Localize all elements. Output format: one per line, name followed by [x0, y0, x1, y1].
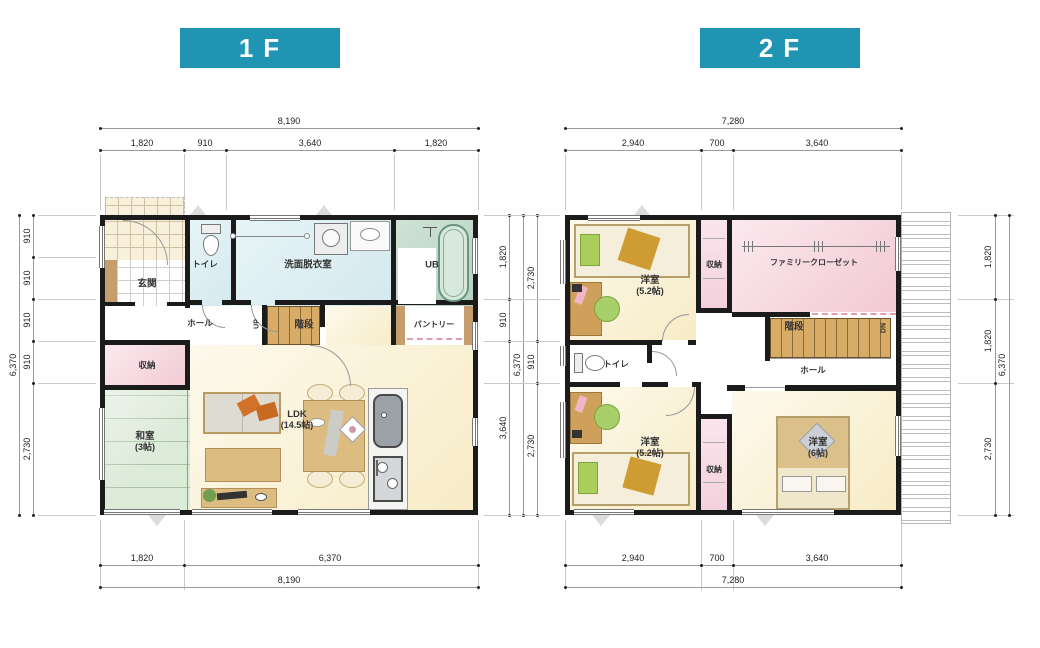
sliding-door-tatami	[187, 390, 188, 510]
dim-extension	[565, 520, 566, 590]
vent-marker	[148, 515, 166, 526]
ldk-size: (14.5帖)	[281, 420, 314, 431]
dim-tick	[994, 382, 997, 385]
dim-tick	[732, 564, 735, 567]
room-label-hall: ホール	[187, 318, 213, 328]
dim-label: 1,820	[131, 138, 154, 148]
dim-label: 910	[22, 228, 32, 243]
dim-tick	[18, 214, 21, 217]
dim-line	[523, 215, 524, 515]
dim-label: 6,370	[8, 354, 18, 377]
window	[472, 322, 478, 350]
window	[298, 509, 370, 515]
dim-tick	[393, 149, 396, 152]
floor1-plan: 玄関 トイレ 洗面脱衣室 UB ホール UP 階段 パントリー 収納 和室 (3…	[100, 215, 478, 515]
room-label-family-closet: ファミリークローゼット	[770, 258, 858, 268]
dim-label: 3,640	[498, 417, 508, 440]
vent-marker	[756, 515, 774, 526]
dim-extension	[484, 341, 560, 342]
stove-burner	[387, 478, 398, 489]
dim-tick	[564, 586, 567, 589]
window	[99, 408, 105, 480]
wall	[688, 340, 696, 345]
dim-label: 910	[498, 312, 508, 327]
room-label-entrance: 玄関	[137, 278, 156, 289]
dim-tick	[183, 149, 186, 152]
toilet-door-swing-f2	[652, 351, 677, 376]
dim-line	[509, 215, 510, 515]
dim-tick	[900, 564, 903, 567]
dim-extension	[484, 299, 560, 300]
room-label-pantry: パントリー	[414, 320, 454, 330]
dim-label: 3,640	[299, 138, 322, 148]
washing-machine-drum	[322, 229, 340, 247]
desk-lamp	[572, 284, 582, 292]
vent-marker	[190, 205, 206, 215]
wall	[727, 385, 745, 391]
floor2-plan: 洋室 (5.2帖) 収納 ファミリークローゼット 階段 DN ホール トイレ 洋…	[565, 215, 901, 515]
dim-extension	[184, 520, 185, 590]
room-label-storage: 収納	[138, 360, 155, 370]
room-label-stairs-f2: 階段	[784, 321, 803, 332]
dim-line	[100, 565, 478, 566]
dim-label: 2,730	[526, 267, 536, 290]
dim-tick	[900, 586, 903, 589]
bedroom-a-name: 洋室	[636, 275, 664, 286]
dim-label: 1,820	[983, 246, 993, 269]
wall	[570, 382, 620, 387]
room-label-tatami: 和室 (3帖)	[135, 431, 155, 453]
room-label-stairs: 階段	[294, 319, 313, 330]
toilet-bowl-f2	[585, 355, 605, 371]
dim-label: 6,370	[319, 553, 342, 563]
dim-extension	[958, 515, 1014, 516]
dim-tick	[477, 149, 480, 152]
room-label-bath: UB	[425, 259, 439, 270]
wall	[275, 300, 396, 305]
window	[192, 509, 272, 515]
dim-tick	[900, 127, 903, 130]
dim-extension	[38, 257, 96, 258]
dim-tick	[700, 149, 703, 152]
wall	[167, 302, 190, 306]
dim-extension	[394, 154, 395, 210]
dim-extension	[958, 383, 1014, 384]
dim-line	[100, 587, 478, 588]
bedroom-b-size: (5.2帖)	[636, 448, 664, 459]
wall	[105, 385, 190, 390]
dim-extension	[484, 383, 560, 384]
dim-extension	[901, 520, 902, 590]
window	[104, 509, 180, 515]
hangers	[814, 241, 826, 252]
stove-burner	[377, 462, 388, 473]
dim-tick	[32, 340, 35, 343]
dim-tick	[477, 564, 480, 567]
window	[472, 238, 478, 274]
stove-grate	[376, 460, 378, 476]
dim-label: 910	[197, 138, 212, 148]
room-label-toilet: トイレ	[192, 259, 218, 269]
dim-extension	[901, 154, 902, 210]
dim-tick	[1008, 514, 1011, 517]
window	[99, 226, 105, 268]
bed-pillow	[580, 234, 600, 266]
hangers	[876, 241, 888, 252]
tatami-name: 和室	[135, 431, 155, 442]
dining-chair	[339, 470, 365, 488]
wall	[642, 382, 668, 387]
dim-extension	[484, 215, 560, 216]
dim-tick	[32, 214, 35, 217]
dim-line	[33, 215, 34, 515]
dim-extension	[478, 520, 479, 590]
bed-pillow	[782, 476, 812, 492]
dim-extension	[958, 215, 1014, 216]
dim-extension	[38, 383, 96, 384]
wall	[696, 308, 732, 313]
wall	[765, 317, 770, 361]
dim-tick	[99, 149, 102, 152]
wall	[696, 220, 701, 308]
dim-label: 6,370	[512, 354, 522, 377]
bath-wash-area	[398, 248, 436, 304]
dim-line	[565, 128, 901, 129]
dim-tick	[900, 149, 903, 152]
ldk-name: LDK	[281, 409, 314, 420]
sliding-door-bedroom-c	[745, 387, 785, 388]
wall	[727, 414, 732, 510]
closet-shelf	[703, 442, 725, 443]
pantry-opening	[407, 338, 462, 340]
dim-extension	[226, 154, 227, 210]
dim-label: 7,280	[722, 116, 745, 126]
dim-line	[19, 215, 20, 515]
room-label-ldk: LDK (14.5帖)	[281, 409, 314, 431]
dim-tick	[477, 127, 480, 130]
dim-tick	[994, 514, 997, 517]
dim-label: 2,730	[526, 435, 536, 458]
dim-label: 2,940	[622, 138, 645, 148]
dim-line	[995, 215, 996, 515]
room-label-bedroom-c: 洋室 (6帖)	[808, 437, 828, 459]
vent-marker	[592, 515, 610, 526]
dim-tick	[564, 127, 567, 130]
dim-tick	[225, 149, 228, 152]
bed-pillow	[578, 462, 598, 494]
laundry-rod-end	[230, 233, 236, 239]
room-label-hall-f2: ホール	[800, 365, 826, 375]
dim-label: 910	[22, 270, 32, 285]
bedroom-c-name: 洋室	[808, 437, 828, 448]
wall	[727, 220, 732, 308]
dim-label: 6,370	[997, 354, 1007, 377]
dim-extension	[38, 299, 96, 300]
closet-shelf	[703, 482, 725, 483]
closet-shelf	[703, 278, 725, 279]
wall	[391, 220, 396, 300]
decor-dish	[255, 493, 267, 501]
toilet-tank	[201, 224, 221, 234]
window	[895, 416, 901, 456]
kitchen-sink	[373, 394, 403, 448]
dim-label: 700	[709, 138, 724, 148]
wall	[190, 300, 202, 305]
wall	[231, 220, 236, 300]
dim-label: 910	[526, 354, 536, 369]
room-label-closet-top: 収納	[706, 260, 722, 270]
window	[560, 346, 566, 366]
bedroom-b-name: 洋室	[636, 437, 664, 448]
dim-tick	[18, 514, 21, 517]
wall	[391, 300, 396, 345]
wall	[236, 300, 251, 305]
stairs-up-label: UP	[254, 319, 261, 329]
floor1-title: 1F	[180, 28, 340, 68]
desk-lamp	[572, 430, 582, 438]
dim-extension	[733, 154, 734, 210]
wall	[785, 385, 896, 391]
window	[588, 215, 640, 221]
stairs-dn-label: DN	[881, 323, 888, 333]
dim-tick	[99, 564, 102, 567]
dim-label: 3,640	[806, 138, 829, 148]
room-label-bedroom-b: 洋室 (5.2帖)	[636, 437, 664, 459]
dim-extension	[701, 520, 702, 590]
dim-label: 1,820	[131, 553, 154, 563]
window	[472, 418, 478, 446]
dim-label: 3,640	[806, 553, 829, 563]
coffee-table	[205, 448, 281, 482]
dim-extension	[478, 154, 479, 210]
dim-tick	[99, 127, 102, 130]
dim-label: 2,730	[22, 438, 32, 461]
dim-line	[100, 128, 478, 129]
wall	[320, 305, 325, 327]
dim-tick	[994, 298, 997, 301]
dim-tick	[564, 564, 567, 567]
tatami-size: (3帖)	[135, 442, 155, 453]
dim-tick	[32, 256, 35, 259]
room-label-closet-bottom: 収納	[706, 465, 722, 475]
room-label-washroom: 洗面脱衣室	[284, 259, 332, 270]
dim-label: 910	[22, 354, 32, 369]
dim-tick	[183, 564, 186, 567]
wall	[185, 220, 190, 308]
vent-marker	[634, 205, 650, 215]
stairs-edge	[770, 358, 891, 359]
dim-label: 2,940	[622, 553, 645, 563]
bedroom-a-size: (5.2帖)	[636, 286, 664, 297]
bedroom-c-size: (6帖)	[808, 448, 828, 459]
dim-tick	[700, 564, 703, 567]
family-closet-opening	[812, 313, 896, 315]
dim-tick	[32, 298, 35, 301]
bed-pillow	[816, 476, 846, 492]
dim-line	[1009, 215, 1010, 515]
window	[560, 402, 566, 458]
dim-extension	[958, 299, 1014, 300]
dim-tick	[477, 586, 480, 589]
hangers	[744, 241, 756, 252]
dim-line	[100, 150, 478, 151]
window	[560, 240, 566, 284]
dim-extension	[100, 520, 101, 590]
dim-tick	[1008, 214, 1011, 217]
dim-label: 2,730	[983, 438, 993, 461]
dim-tick	[99, 586, 102, 589]
floorplan-page: { "colors": { "title_bg": "#2095b3", "wa…	[0, 0, 1040, 648]
pantry-shelf-left	[396, 306, 405, 345]
wall	[105, 302, 135, 306]
dim-extension	[565, 154, 566, 210]
vanity-sink	[360, 228, 380, 241]
shower-fixture	[430, 227, 431, 237]
entrance-step-wood	[105, 260, 117, 306]
dim-extension	[100, 154, 101, 210]
dim-line	[565, 587, 901, 588]
dim-extension	[484, 515, 560, 516]
dining-chair	[307, 470, 333, 488]
closet-shelf	[703, 238, 725, 239]
dim-tick	[732, 149, 735, 152]
desk-chair	[594, 296, 620, 322]
window	[250, 215, 300, 221]
dim-line	[537, 215, 538, 515]
dim-extension	[38, 515, 96, 516]
dim-label: 8,190	[278, 575, 301, 585]
wall	[732, 312, 810, 317]
window	[895, 237, 901, 271]
laundry-rod	[233, 236, 307, 237]
toilet-tank-f2	[574, 353, 583, 373]
wall	[696, 382, 701, 510]
dim-label: 7,280	[722, 575, 745, 585]
ldk-floor-upper	[326, 306, 391, 350]
dim-extension	[38, 341, 96, 342]
room-label-bedroom-a: 洋室 (5.2帖)	[636, 275, 664, 297]
vent-marker	[316, 205, 332, 215]
dim-extension	[701, 154, 702, 210]
balcony-roof	[901, 212, 951, 524]
dim-label: 1,820	[425, 138, 448, 148]
dim-tick	[32, 514, 35, 517]
floor2-title: 2F	[700, 28, 860, 68]
dim-tick	[32, 382, 35, 385]
laundry-rod-end	[304, 233, 310, 239]
bathtub-inner	[443, 229, 464, 297]
dim-tick	[994, 214, 997, 217]
dim-label: 8,190	[278, 116, 301, 126]
dim-label: 1,820	[983, 330, 993, 353]
dim-label: 910	[22, 312, 32, 327]
room-label-toilet-f2: トイレ	[603, 359, 629, 369]
plant	[203, 489, 216, 502]
wall	[185, 340, 190, 390]
table-bowl	[349, 426, 356, 433]
desk-chair	[594, 404, 620, 430]
kitchen-faucet	[381, 412, 387, 418]
dim-label: 700	[709, 553, 724, 563]
dim-label: 1,820	[498, 246, 508, 269]
dim-tick	[564, 149, 567, 152]
wall	[105, 340, 190, 345]
dim-extension	[38, 215, 96, 216]
